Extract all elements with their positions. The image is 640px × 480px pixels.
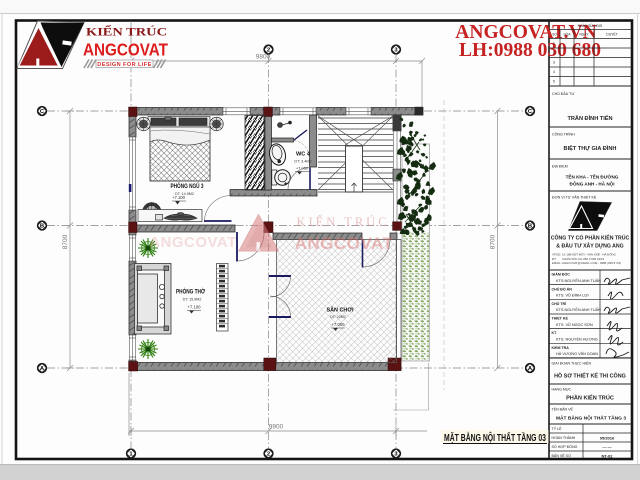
- svg-text:DUYỆT: DUYỆT: [606, 32, 618, 37]
- svg-text:3: 3: [553, 61, 555, 65]
- svg-text:& ĐẦU TƯ XÂY DỰNG ANG: & ĐẦU TƯ XÂY DỰNG ANG: [556, 243, 623, 250]
- svg-text:ĐỊA ĐIỂM: ĐỊA ĐIỂM: [552, 164, 568, 169]
- svg-text:BẢN VẼ SỐ: BẢN VẼ SỐ: [552, 453, 572, 458]
- svg-text:HẠNG MỤC: HẠNG MỤC: [552, 388, 572, 392]
- svg-text:+7.050: +7.050: [332, 322, 346, 327]
- svg-text:SỐ: SỐ: [552, 32, 557, 37]
- svg-text:NT-02: NT-02: [602, 453, 614, 458]
- svg-text:ANGCOVAT: ANGCOVAT: [295, 234, 394, 253]
- svg-text:TỶ LỆ: TỶ LỆ: [552, 426, 563, 431]
- svg-text:SỐ HỢP ĐỒNG: SỐ HỢP ĐỒNG: [552, 444, 578, 449]
- svg-text:8700: 8700: [490, 234, 497, 249]
- svg-text:2: 2: [267, 48, 270, 54]
- svg-text:TÊN BẢN VẼ: TÊN BẢN VẼ: [552, 407, 574, 412]
- svg-text:2: 2: [267, 452, 270, 458]
- svg-text:KT: KT: [552, 331, 558, 335]
- svg-text:ANGCOVAT@GMAIL.COM - 0988 (095: ANGCOVAT@GMAIL.COM - 0988 (095.5.3.8): [562, 261, 621, 265]
- svg-text:GIÁM ĐỐC: GIÁM ĐỐC: [552, 272, 571, 277]
- svg-text:PHÒNG THỜ: PHÒNG THỜ: [176, 288, 206, 296]
- svg-text:CÔNG TRÌNH: CÔNG TRÌNH: [552, 132, 575, 137]
- svg-text:LK 16B KĐT MỚI - VĂN KHÊ - HÀ: LK 16B KĐT MỚI - VĂN KHÊ - HÀ ĐÔNG: [562, 252, 617, 257]
- svg-text:DESIGN FOR LIFE: DESIGN FOR LIFE: [97, 62, 151, 68]
- svg-text:CHỦ ĐỒ ÁN: CHỦ ĐỒ ÁN: [552, 286, 573, 291]
- svg-text:KIẾN TRÚC: KIẾN TRÚC: [296, 214, 389, 229]
- svg-text:5: 5: [553, 80, 555, 84]
- svg-text:SỬA: SỬA: [564, 32, 572, 37]
- svg-text:HỒ SƠ THIẾT KẾ THI CÔNG: HỒ SƠ THIẾT KẾ THI CÔNG: [554, 372, 626, 380]
- svg-text:KIẾN TRÚC: KIẾN TRÚC: [86, 24, 167, 39]
- svg-text:8700: 8700: [62, 234, 69, 249]
- svg-text:DT: 15.9M2: DT: 15.9M2: [183, 298, 202, 302]
- svg-text:ANGCOVAT: ANGCOVAT: [149, 234, 237, 251]
- svg-text:MẶT BẰNG NỘI THẤT TẦNG 03: MẶT BẰNG NỘI THẤT TẦNG 03: [444, 431, 546, 444]
- svg-text:CHỦ ĐẦU TƯ: CHỦ ĐẦU TƯ: [552, 91, 575, 96]
- svg-text:THIẾT KẾ: THIẾT KẾ: [552, 316, 569, 321]
- svg-text:NGÀY SỬA ĐỔI: NGÀY SỬA ĐỔI: [578, 23, 603, 28]
- svg-text:KTS. VŨ NGỌC SƠN: KTS. VŨ NGỌC SƠN: [556, 322, 593, 327]
- svg-text:DT: 3.4M2: DT: 3.4M2: [294, 160, 311, 164]
- svg-text:ĐƠN VỊ TƯ VẤN THIẾT KẾ: ĐƠN VỊ TƯ VẤN THIẾT KẾ: [552, 195, 597, 200]
- svg-text:TÊN KHA - TÊN ĐƯỜNG: TÊN KHA - TÊN ĐƯỜNG: [566, 173, 619, 180]
- svg-text:EMAIL:: EMAIL:: [552, 261, 562, 265]
- svg-text:TRẦN ĐÌNH TIẾN: TRẦN ĐÌNH TIẾN: [567, 114, 612, 122]
- svg-text:KTS. VŨ ĐÌNH LỢI: KTS. VŨ ĐÌNH LỢI: [556, 292, 589, 297]
- svg-text:B: B: [40, 224, 44, 230]
- svg-text:05/2016: 05/2016: [600, 435, 615, 440]
- svg-text:+7.100: +7.100: [172, 195, 186, 200]
- svg-text:4: 4: [553, 70, 555, 74]
- svg-text:1: 1: [553, 42, 555, 46]
- svg-text:HÀ VƯƠNG VĂN DOAN: HÀ VƯƠNG VĂN DOAN: [556, 352, 598, 356]
- svg-text:DT: 22M2: DT: 22M2: [330, 315, 346, 319]
- svg-text:HOÀN THÀNH: HOÀN THÀNH: [552, 436, 576, 440]
- svg-text:KTS. NGUYỄN HƯƠNG: KTS. NGUYỄN HƯƠNG: [556, 336, 598, 341]
- svg-text:PHẦN KIẾN TRÚC: PHẦN KIẾN TRÚC: [566, 395, 614, 402]
- svg-text:2: 2: [553, 51, 555, 55]
- svg-text:+7.100: +7.100: [188, 305, 202, 310]
- svg-text:9900: 9900: [269, 424, 284, 431]
- svg-text:WC 4: WC 4: [296, 152, 311, 158]
- svg-text:NGÀY: NGÀY: [579, 33, 589, 37]
- svg-text:KTS.NGUYỄN ANH TUẤN: KTS.NGUYỄN ANH TUẤN: [556, 307, 601, 312]
- svg-text:GIAI ĐOẠN THỰC HIỆN: GIAI ĐOẠN THỰC HIỆN: [552, 361, 592, 366]
- svg-text:CHỦ TRÌ: CHỦ TRÌ: [552, 301, 567, 306]
- svg-text:— —: — —: [602, 444, 611, 449]
- svg-text:B: B: [528, 224, 532, 230]
- svg-text:ANGCOVAT: ANGCOVAT: [83, 40, 168, 60]
- svg-text:KTS.NGUYỄN ANH TUẤN: KTS.NGUYỄN ANH TUẤN: [556, 278, 601, 283]
- svg-text:CÔNG TY CỔ PHẦN KIẾN TRÚC: CÔNG TY CỔ PHẦN KIẾN TRÚC: [551, 234, 630, 242]
- svg-text:+7.050: +7.050: [296, 166, 309, 171]
- svg-text:KIỂM TRA: KIỂM TRA: [552, 345, 570, 350]
- svg-text:SÂN CHƠI: SÂN CHƠI: [327, 307, 354, 314]
- svg-text:PHÒNG NGỦ 3: PHÒNG NGỦ 3: [171, 182, 205, 190]
- svg-text:BIỆT THỰ GIA ĐÌNH: BIỆT THỰ GIA ĐÌNH: [564, 144, 617, 152]
- svg-text:ĐÔNG ANH - HÀ NỘI: ĐÔNG ANH - HÀ NỘI: [570, 180, 615, 187]
